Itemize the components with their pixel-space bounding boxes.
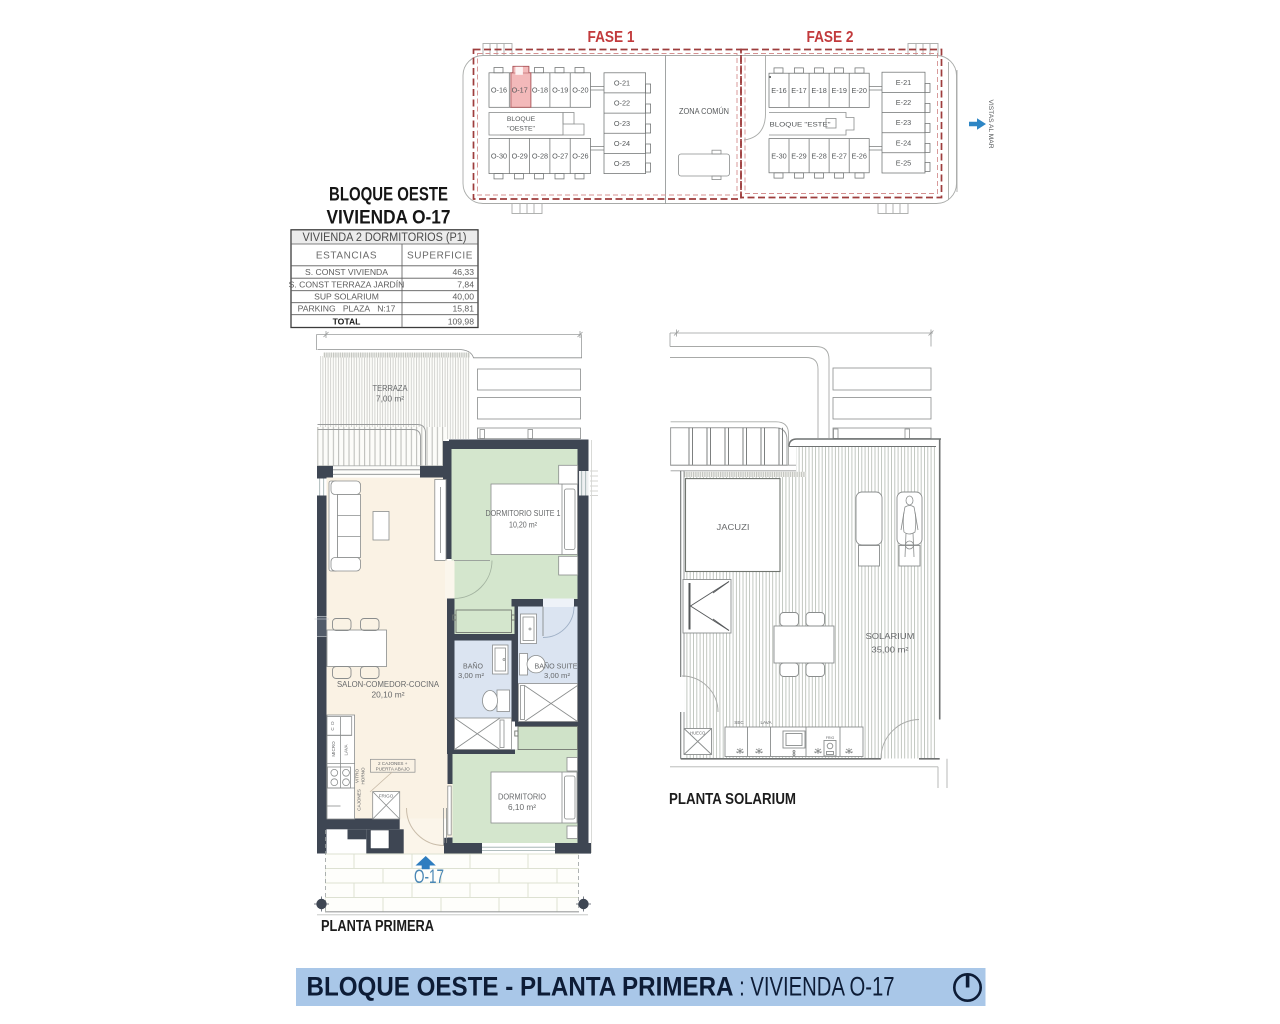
svg-text:ZONA COMÚN: ZONA COMÚN [679,107,729,116]
svg-text:O-28: O-28 [532,152,548,161]
svg-text:7,00 m²: 7,00 m² [376,395,404,404]
svg-text:E-28: E-28 [811,152,826,161]
svg-text:SUP SOLARIUM: SUP SOLARIUM [314,292,379,302]
svg-text:LAVA: LAVA [344,744,349,756]
svg-text:BLOQUE OESTE - PLANTA PRIMERA: BLOQUE OESTE - PLANTA PRIMERA : VIVIENDA… [307,972,895,1002]
svg-text:O-17: O-17 [414,867,444,888]
svg-text:3,00 m²: 3,00 m² [458,673,485,680]
svg-text:46,33: 46,33 [452,267,474,277]
svg-text:FASE 2: FASE 2 [807,29,854,46]
svg-text:10,20 m²: 10,20 m² [509,521,537,530]
svg-text:E-25: E-25 [896,158,911,167]
svg-text:PARKING PLAZA N:17: PARKING PLAZA N:17 [298,304,396,314]
svg-text:O-16: O-16 [491,86,507,95]
svg-text:O-30: O-30 [491,152,507,161]
svg-text:DORMITORIO: DORMITORIO [498,793,546,802]
svg-text:O-29: O-29 [512,152,528,161]
svg-text:PLANTA SOLARIUM: PLANTA SOLARIUM [669,791,796,808]
svg-text:E-27: E-27 [831,152,846,161]
svg-text:35,00 m²: 35,00 m² [872,646,909,655]
svg-text:PLANTA PRIMERA: PLANTA PRIMERA [321,918,434,935]
svg-text:E-23: E-23 [896,118,911,127]
svg-text:BLOQUE "ESTE": BLOQUE "ESTE" [770,122,832,129]
svg-text:SEC: SEC [734,720,744,725]
svg-text:O-27: O-27 [552,152,568,161]
svg-text:20,10 m²: 20,10 m² [372,691,405,700]
svg-text:E-21: E-21 [896,78,911,87]
svg-text:S. CONST TERRAZA JARDÍN: S. CONST TERRAZA JARDÍN [289,280,405,290]
svg-text:VIVIENDA 2 DORMITORIOS (P1): VIVIENDA 2 DORMITORIOS (P1) [303,232,467,244]
svg-text:E-16: E-16 [771,86,786,95]
svg-text:E-17: E-17 [791,86,806,95]
svg-text:E-19: E-19 [831,86,846,95]
svg-text:S. CONST VIVIENDA: S. CONST VIVIENDA [305,267,388,277]
svg-text:BAÑO SUITE: BAÑO SUITE [535,662,578,671]
svg-text:DORMITORIO SUITE 1: DORMITORIO SUITE 1 [486,509,561,518]
svg-text:MICRO: MICRO [331,741,336,757]
svg-text:E-18: E-18 [811,86,826,95]
svg-text:E-20: E-20 [851,86,866,95]
svg-text:VISTAS AL MAR: VISTAS AL MAR [987,100,994,149]
svg-text:JACUZI: JACUZI [717,523,750,532]
svg-text:2 CAJONES +: 2 CAJONES + [378,761,408,766]
svg-text:O-26: O-26 [572,152,588,161]
svg-text:SALON-COMEDOR-COCINA: SALON-COMEDOR-COCINA [337,680,440,689]
svg-text:7,84: 7,84 [457,280,474,290]
svg-text:E-24: E-24 [896,138,911,147]
svg-text:VIVIENDA O-17: VIVIENDA O-17 [327,207,451,229]
svg-text:FRIGO: FRIGO [379,794,394,799]
svg-text:BLOQUE: BLOQUE [507,116,536,123]
svg-text:3,00 m²: 3,00 m² [544,673,571,680]
svg-text:O-18: O-18 [532,86,548,95]
svg-text:O-20: O-20 [572,86,588,95]
svg-text:O-24: O-24 [614,139,630,148]
svg-text:HUECO: HUECO [690,731,706,736]
svg-text:TOTAL: TOTAL [333,317,361,327]
svg-text:E-30: E-30 [771,152,786,161]
svg-text:HORNO: HORNO [361,767,366,785]
svg-text:FRIG: FRIG [826,736,835,740]
svg-text:O-21: O-21 [614,79,630,88]
svg-text:SOLARIUM: SOLARIUM [866,632,915,641]
svg-text:TERRAZA: TERRAZA [373,384,409,393]
svg-text:VITRO: VITRO [355,769,360,783]
svg-text:E-26: E-26 [851,152,866,161]
svg-text:SUPERFICIE: SUPERFICIE [407,251,473,262]
svg-text:FASE 1: FASE 1 [588,29,635,46]
svg-text:ESTANCIAS: ESTANCIAS [316,251,377,262]
svg-text:O-19: O-19 [552,86,568,95]
svg-text:6,10 m²: 6,10 m² [508,803,536,812]
svg-text:BLOQUE OESTE: BLOQUE OESTE [329,184,448,206]
svg-text:O-25: O-25 [614,159,630,168]
svg-text:LAVA: LAVA [760,720,772,725]
svg-text:E-22: E-22 [896,98,911,107]
svg-text:PUERTA ABAJO: PUERTA ABAJO [376,767,410,772]
svg-text:O-17: O-17 [512,86,528,95]
svg-text:O-23: O-23 [614,119,630,128]
svg-text:O-22: O-22 [614,99,630,108]
svg-text:40,00: 40,00 [452,292,474,302]
svg-text:C D: C D [330,721,335,731]
svg-text:"OESTE": "OESTE" [507,126,535,133]
svg-text:109,98: 109,98 [448,317,475,327]
svg-text:E-29: E-29 [791,152,806,161]
svg-text:CAJONES: CAJONES [357,789,362,811]
svg-text:15,81: 15,81 [452,304,474,314]
svg-text:BAÑO: BAÑO [463,662,484,671]
